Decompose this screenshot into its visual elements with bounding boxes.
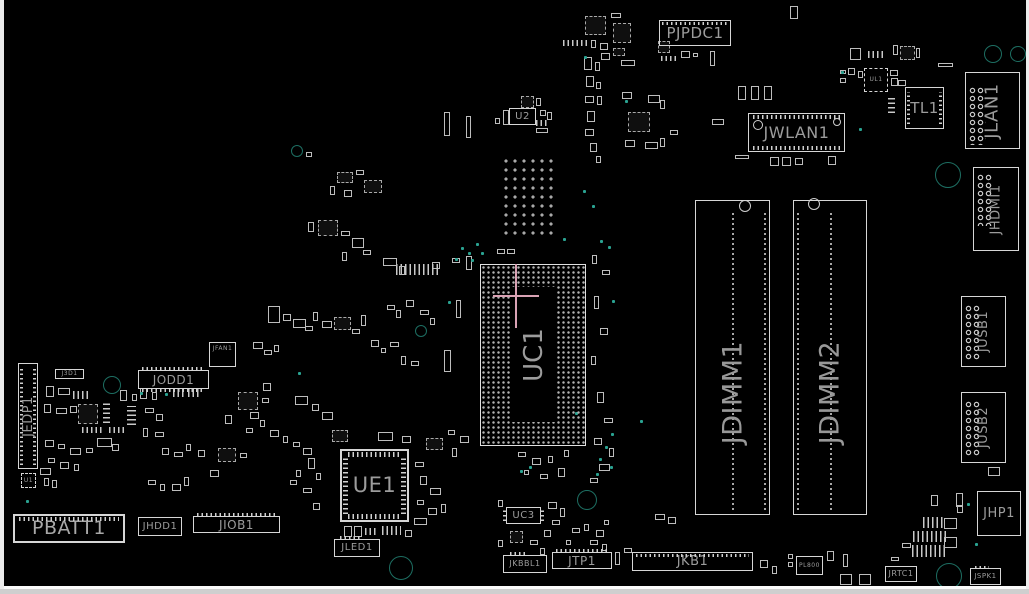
component-label: JFAN1 — [213, 346, 233, 352]
component-label: JEDP1 — [22, 396, 35, 437]
pin-row — [636, 554, 749, 557]
window-bottom-edge — [0, 589, 1029, 594]
pin-row — [340, 536, 360, 539]
via-dot — [140, 392, 143, 395]
component-label: JTP1 — [568, 555, 596, 567]
component-jhdd1[interactable]: JHDD1 — [138, 517, 182, 536]
via-dot — [584, 56, 587, 59]
component-label: J3D1 — [61, 371, 77, 377]
via-dot — [563, 238, 566, 241]
probe-crosshair — [493, 295, 539, 297]
window-left-edge — [0, 0, 4, 594]
component-jkbbl1[interactable]: JKBBL1 — [503, 555, 547, 573]
via-dot — [481, 252, 484, 255]
pin-col — [401, 457, 406, 514]
component-label: TL1 — [910, 101, 939, 116]
component-jdimm1[interactable]: JDIMM1 — [695, 200, 770, 515]
component-label: JKBBL1 — [509, 560, 540, 568]
component-ul1[interactable]: UL1 — [864, 68, 888, 92]
pin-row — [753, 115, 840, 119]
component-jedp1[interactable]: JEDP1 — [18, 363, 38, 469]
pin-col — [503, 510, 506, 521]
component-label: JDIMM1 — [719, 341, 746, 445]
via-dot — [26, 500, 29, 503]
via-dot — [520, 470, 523, 473]
component-label: JSPK1 — [974, 573, 996, 580]
pin-row — [348, 452, 401, 457]
component-jhdmi1[interactable]: JHDMI1 — [973, 167, 1019, 251]
component-label: JIOB1 — [219, 519, 254, 531]
component-ue1[interactable]: UE1 — [340, 449, 409, 522]
component-label: PJPDC1 — [666, 26, 723, 41]
component-label: JODD1 — [153, 374, 195, 386]
via-dot — [859, 128, 862, 131]
component-jspk1[interactable]: JSPK1 — [970, 568, 1001, 585]
component-u1[interactable]: U1 — [21, 473, 36, 488]
via-dot — [461, 247, 464, 250]
boardview-canvas[interactable]: PJPDC1 JWLAN1 TL1 UL1 JLAN1 JHDMI1 JUSB1… — [0, 0, 1029, 594]
via-dot — [471, 259, 474, 262]
component-uc3[interactable]: UC3 — [506, 507, 541, 524]
component-pl800[interactable]: PL800 — [796, 556, 823, 575]
component-j3d1[interactable]: J3D1 — [55, 369, 84, 379]
via-dot — [448, 301, 451, 304]
component-jdimm2[interactable]: JDIMM2 — [793, 200, 867, 515]
component-label: JLED1 — [341, 543, 372, 553]
component-pjpdc1[interactable]: PJPDC1 — [659, 20, 731, 46]
pin-row — [662, 22, 728, 25]
component-jled1[interactable]: JLED1 — [334, 539, 380, 557]
testpad-grid — [504, 159, 557, 239]
component-label: JRTC1 — [889, 570, 914, 578]
via-ring — [935, 162, 961, 188]
pin-row — [348, 514, 401, 519]
component-label: UC3 — [512, 511, 534, 521]
via-ring — [577, 490, 597, 510]
pin-row — [142, 389, 205, 392]
via-dot — [583, 190, 586, 193]
via-dot — [476, 243, 479, 246]
component-jhp1[interactable]: JHP1 — [977, 491, 1021, 536]
component-label: JUSB2 — [977, 407, 990, 448]
via-dot — [455, 258, 458, 261]
via-dot — [165, 393, 168, 396]
component-uc1[interactable]: UC1 — [480, 264, 586, 446]
component-label: JHDMI1 — [990, 184, 1003, 234]
component-jwlan1[interactable]: JWLAN1 — [748, 113, 845, 152]
via-ring — [1010, 46, 1026, 62]
component-label: U2 — [515, 112, 530, 122]
pin-col — [541, 510, 544, 521]
pin-row — [19, 517, 119, 521]
component-label: U1 — [24, 478, 33, 484]
via-dot — [611, 433, 614, 436]
component-label: JLAN1 — [984, 83, 1002, 138]
via-dot — [600, 240, 603, 243]
component-label: JWLAN1 — [764, 125, 830, 141]
component-label: UL1 — [869, 77, 882, 83]
contact-line — [764, 213, 766, 510]
via-dot — [967, 503, 970, 506]
pin-row — [142, 367, 205, 370]
via-dot — [592, 205, 595, 208]
component-tl1[interactable]: TL1 — [905, 87, 944, 129]
via-dot — [841, 71, 844, 74]
via-dot — [605, 446, 608, 449]
via-dot — [608, 246, 611, 249]
via-dot — [612, 300, 615, 303]
pin-col — [939, 92, 942, 124]
component-label: JHDD1 — [143, 522, 178, 532]
via-ring — [389, 556, 413, 580]
via-dot — [610, 466, 613, 469]
component-label: PBATT1 — [32, 519, 106, 538]
contact-line — [797, 213, 799, 510]
via-dot — [529, 466, 532, 469]
component-u2[interactable]: U2 — [509, 108, 536, 125]
via-dot — [298, 372, 301, 375]
via-dot — [975, 543, 978, 546]
via-ring — [291, 145, 303, 157]
via-dot — [468, 252, 471, 255]
component-label: PL800 — [799, 563, 820, 569]
component-label: JUSB1 — [977, 311, 990, 352]
bga-core: UC1 — [511, 287, 556, 422]
via-dot — [625, 100, 628, 103]
via-dot — [640, 420, 643, 423]
pin-row — [556, 549, 608, 552]
via-dot — [599, 458, 602, 461]
component-jrtc1[interactable]: JRTC1 — [885, 566, 917, 582]
component-label: JHP1 — [983, 507, 1015, 520]
component-jfan1[interactable]: JFAN1 — [209, 342, 236, 367]
pin-row — [197, 513, 276, 516]
pin-row — [510, 552, 528, 555]
component-jlan1[interactable]: JLAN1 — [965, 72, 1020, 149]
component-pbatt1[interactable]: PBATT1 — [13, 514, 125, 543]
component-jusb2[interactable]: JUSB2 — [961, 392, 1006, 463]
component-jusb1[interactable]: JUSB1 — [961, 296, 1006, 367]
via-dot — [596, 473, 599, 476]
via-ring — [103, 376, 121, 394]
via-ring — [415, 325, 427, 337]
component-label: JDIMM2 — [817, 341, 844, 445]
component-jiob1[interactable]: JIOB1 — [193, 516, 280, 533]
component-jtp1[interactable]: JTP1 — [552, 552, 612, 569]
pin-col — [343, 457, 348, 514]
component-jkb1[interactable]: JKB1 — [632, 552, 753, 571]
pin-row — [975, 566, 989, 568]
component-label: UE1 — [353, 475, 397, 496]
pin-col — [907, 92, 910, 124]
pin-row — [753, 146, 840, 150]
component-jodd1[interactable]: JODD1 — [138, 370, 209, 389]
via-ring — [984, 45, 1002, 63]
component-label: UC1 — [519, 328, 549, 382]
